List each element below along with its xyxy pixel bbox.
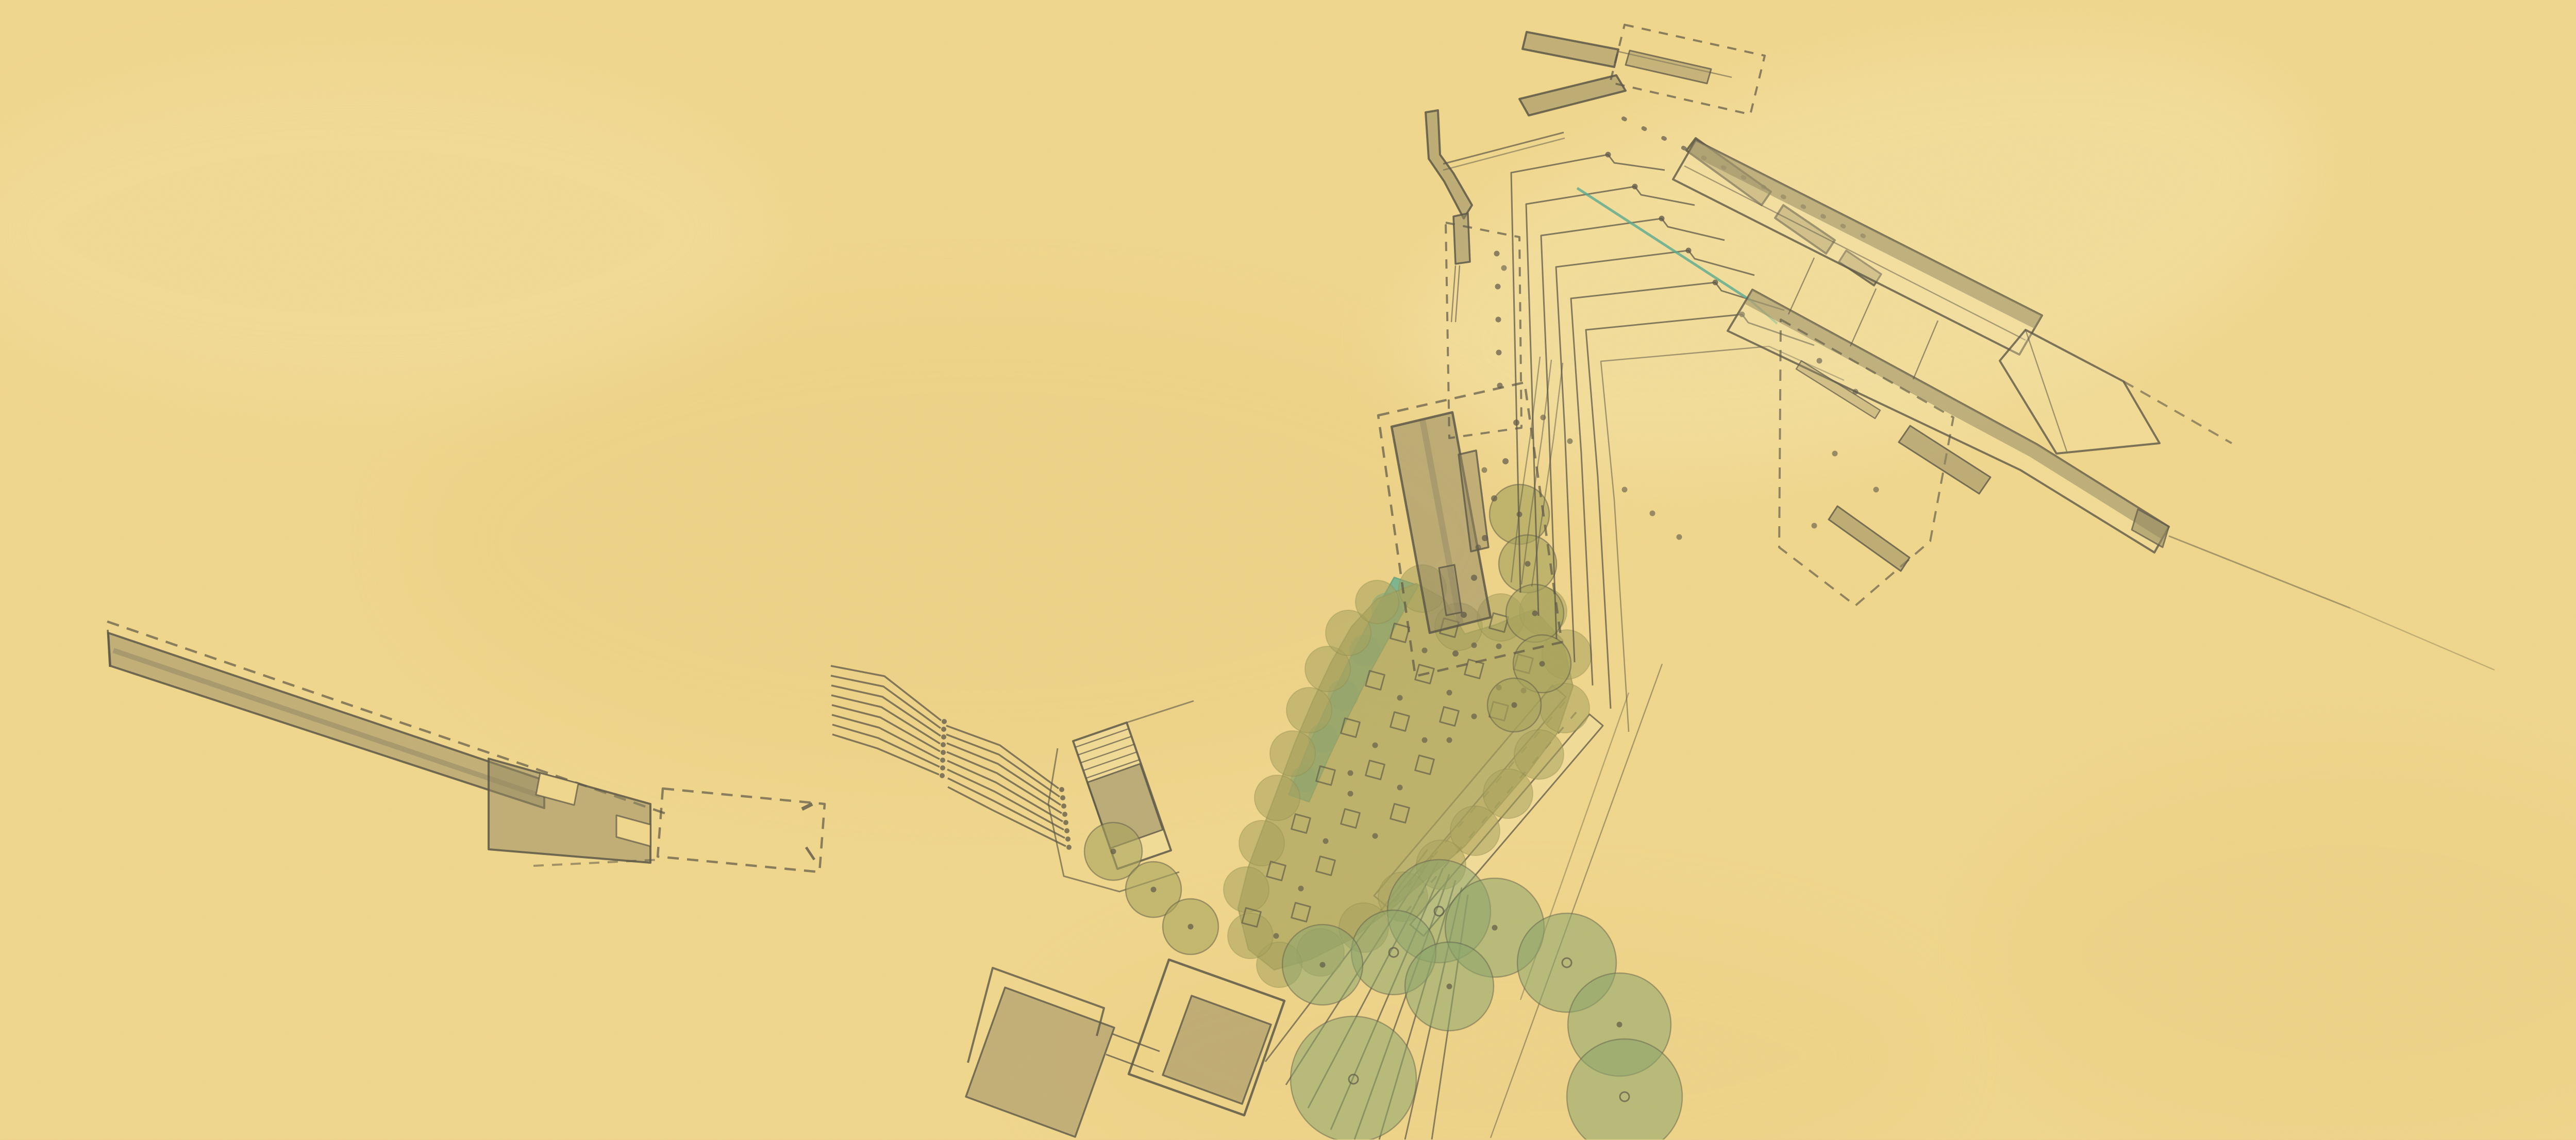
site-plan-canvas <box>0 0 2576 1139</box>
paper-grain-texture <box>0 0 2576 1139</box>
site-plan-sheet: Hand-drawn landscape site plan sketch <box>0 0 2576 1139</box>
